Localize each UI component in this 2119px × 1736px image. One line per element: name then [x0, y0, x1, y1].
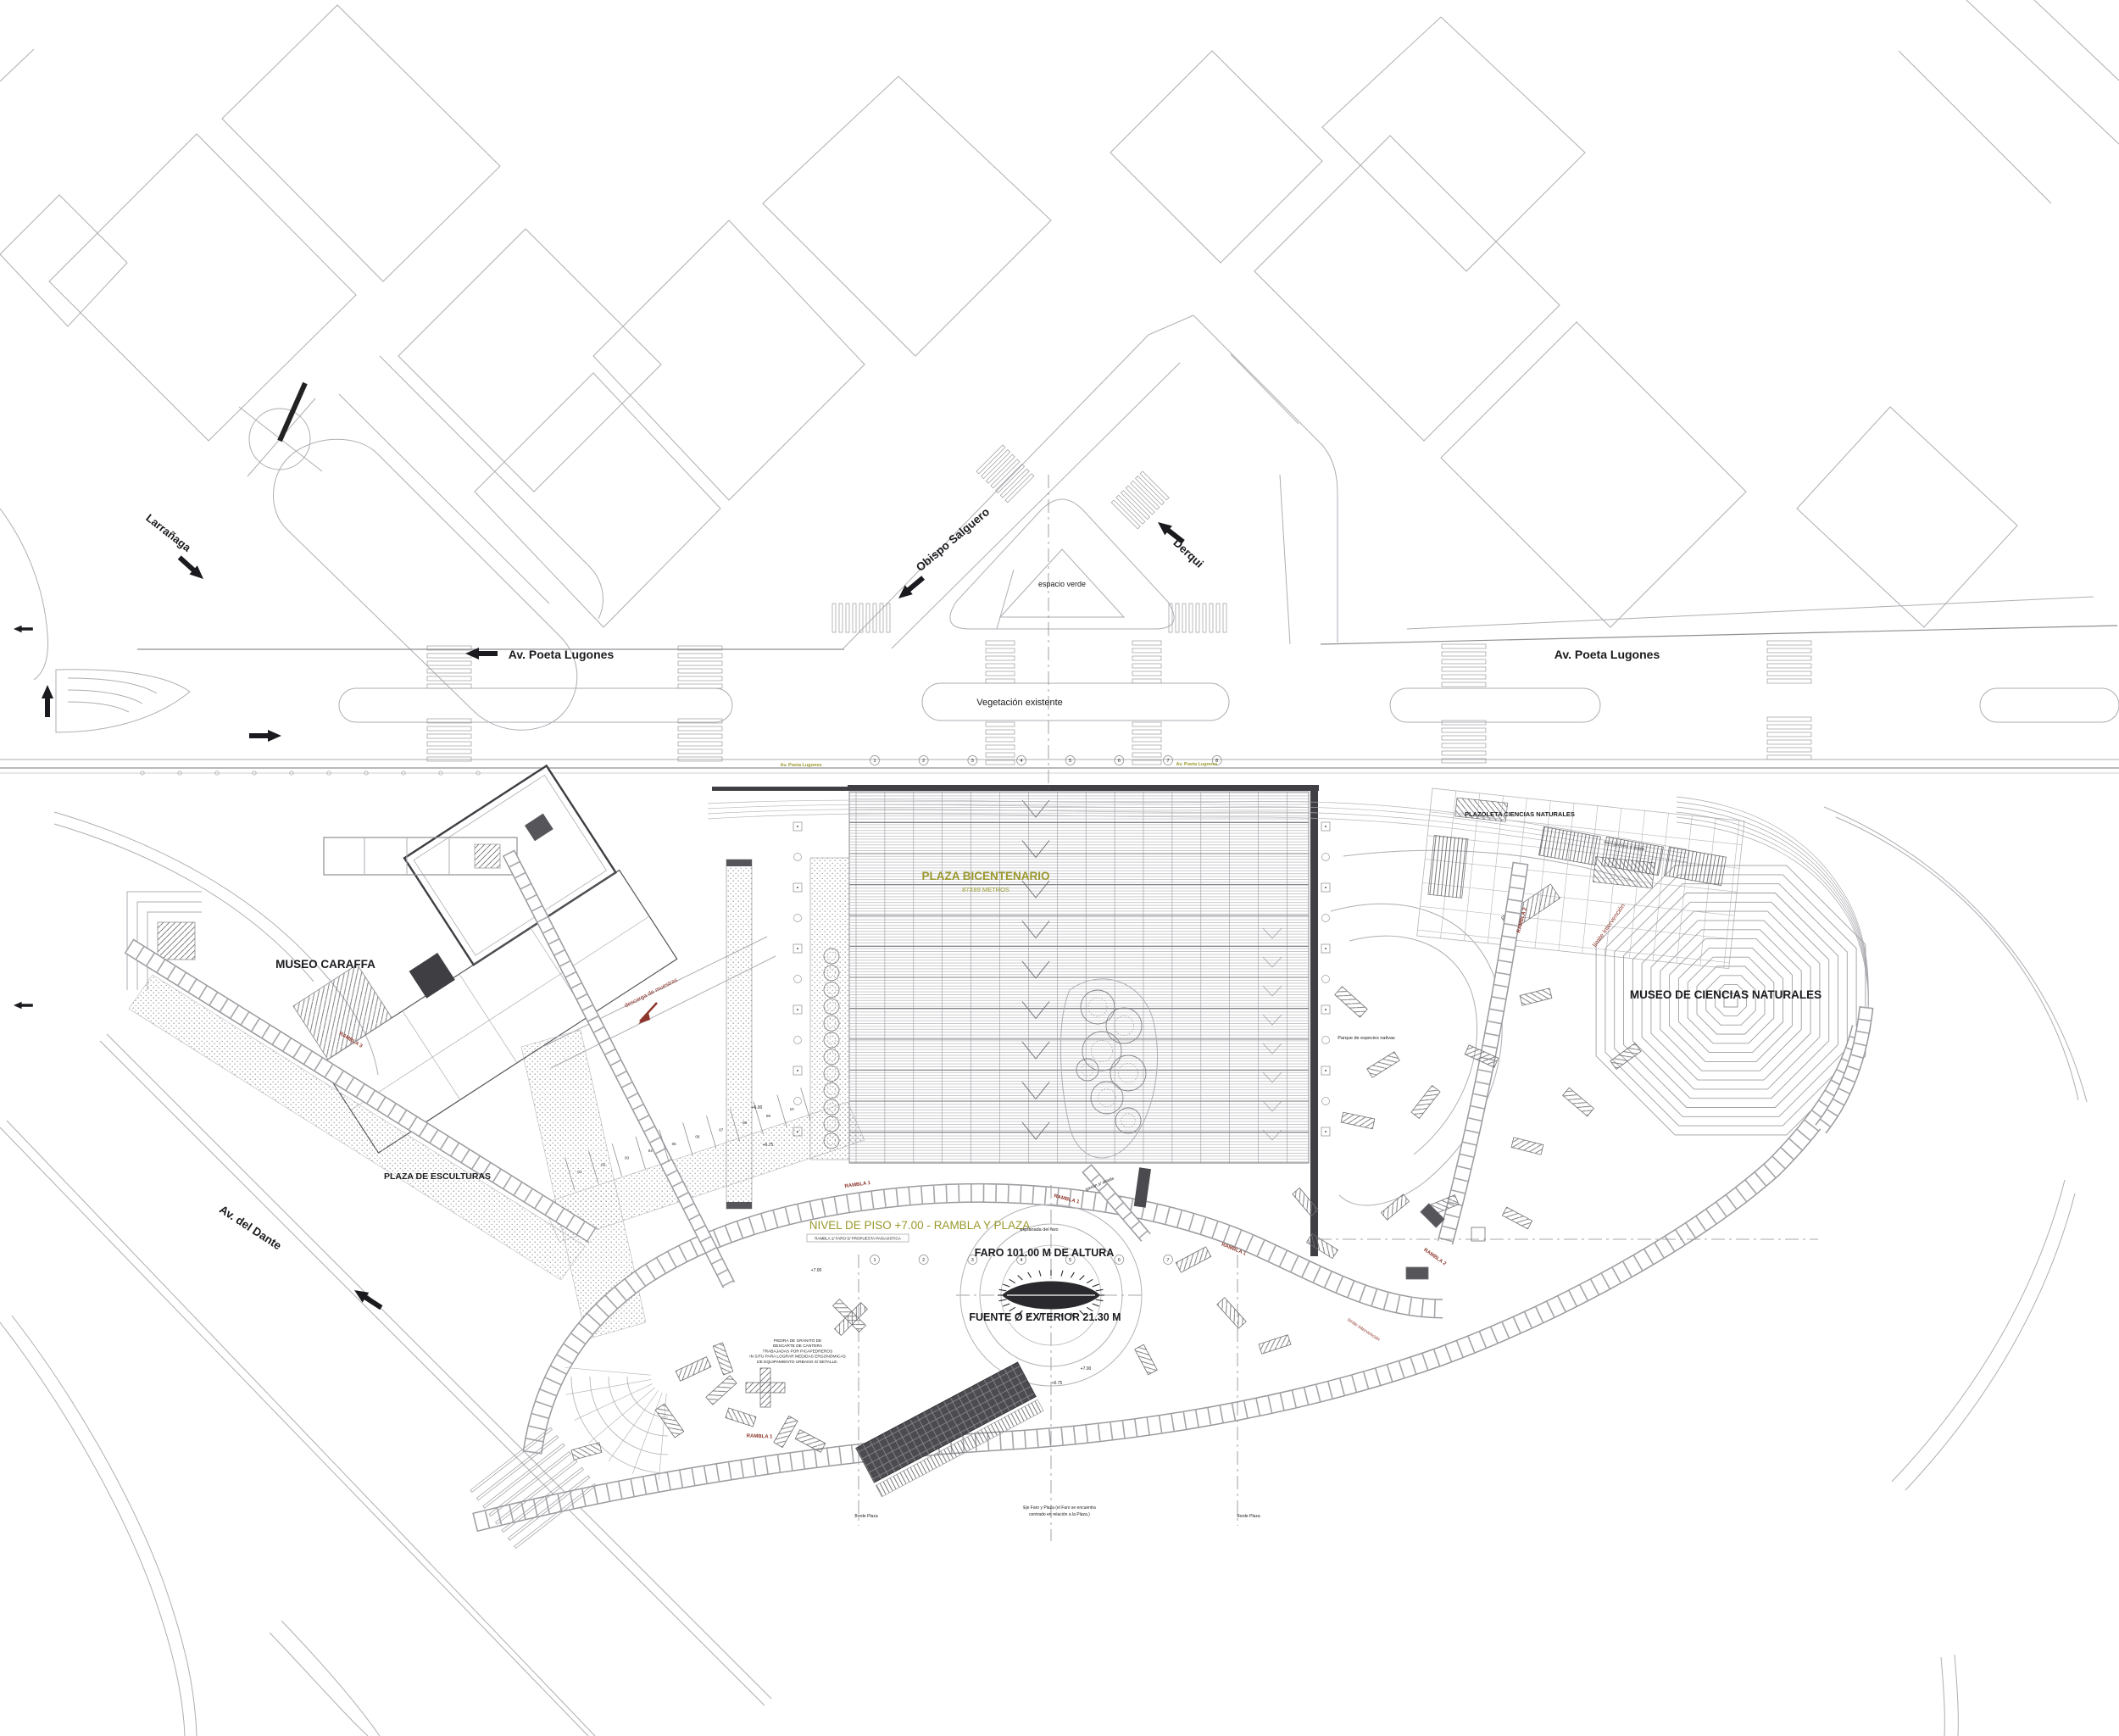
- grid-marker: 6: [1118, 759, 1121, 764]
- bench-hatch: [1411, 1086, 1440, 1119]
- median-island-vegetacion: [922, 683, 1229, 721]
- label-plaza-bicentenario: PLAZA BICENTENARIO: [922, 870, 1050, 882]
- label-nivel-de-piso: NIVEL DE PISO +7.00 - RAMBLA Y PLAZA: [809, 1219, 1031, 1232]
- crosswalk: [986, 722, 1015, 765]
- street-label-av-poeta-lugones-left: Av. Poeta Lugones: [509, 648, 615, 661]
- note-piedra-granito: PIEDRA DE GRANITO DE: [774, 1338, 822, 1344]
- parking-stall-number: 05: [672, 1142, 677, 1146]
- plaza-east-wall: [1310, 788, 1318, 1256]
- bench-hatch: [1511, 1138, 1543, 1155]
- crosswalk: [678, 719, 722, 761]
- label-explanada: explanada del faro: [1020, 1227, 1058, 1232]
- parking-stall-number: 06: [695, 1135, 700, 1139]
- pergola-building: [856, 1362, 1043, 1497]
- label-eje-faro-1: Eje Faro y Plaza (el Faro se encuentra: [1023, 1505, 1096, 1511]
- bench-hatch: [1135, 1344, 1158, 1375]
- crosswalk: [1767, 641, 1811, 683]
- label-descarga: descarga de muestras: [624, 977, 679, 1010]
- label-borde-plaza-right: Borde Plaza: [1237, 1514, 1260, 1519]
- city-blocks-layer: [0, 0, 2119, 730]
- crosswalk: [427, 646, 471, 688]
- bench-hatch: [655, 1404, 684, 1438]
- parking-stall-number: 08: [742, 1121, 748, 1125]
- crosswalk: [976, 445, 1034, 503]
- grid-marker: 4: [1020, 759, 1022, 764]
- direction-arrow: [175, 553, 208, 583]
- label-faro: FARO 101.00 M DE ALTURA: [975, 1247, 1115, 1259]
- direction-arrow: [14, 1002, 33, 1009]
- direction-arrow: [42, 685, 53, 717]
- street-label-av-poeta-lugones-right: Av. Poeta Lugones: [1554, 648, 1660, 661]
- parking-stall-number: 10: [790, 1107, 795, 1111]
- site-plan: 12345678123456701020304050607080910+7.00…: [0, 0, 2119, 1736]
- crosswalk: [1132, 641, 1161, 683]
- direction-arrow: [895, 573, 927, 603]
- label-plazoleta: PLAZOLETA CIENCIAS NATURALES: [1465, 810, 1575, 818]
- bench-hatch: [1217, 1298, 1246, 1328]
- parking-stall-number: 02: [601, 1163, 606, 1167]
- bench-hatch: [713, 1343, 733, 1375]
- label-parque-nativas: Parque de especies nativas: [1338, 1036, 1395, 1041]
- level-label: +6.75: [1052, 1381, 1063, 1386]
- crosswalk: [678, 646, 722, 688]
- bench-hatch: [676, 1357, 711, 1382]
- label-museo-caraffa: MUSEO CARAFFA: [275, 958, 375, 971]
- street-label-obispo-salguero: Obispo Salguero: [914, 505, 992, 574]
- bench-hatch: [1341, 1112, 1375, 1129]
- bench-hatch: [774, 1416, 798, 1447]
- label-nivel-box: RAMBLA 1/ FARO S/ PROPUESTA PAISAJISTICA: [815, 1237, 901, 1241]
- bench-hatch: [1520, 988, 1552, 1005]
- parking-stall-number: 09: [766, 1114, 771, 1118]
- note-piedra-granito: IN SITU PARA LOGRAR MEDIDAS ERGONÓMICAS: [749, 1354, 845, 1360]
- bench-hatch: [706, 1376, 737, 1405]
- level-label: +7.00: [1081, 1366, 1092, 1372]
- label-museo-ciencias-naturales: MUSEO DE CIENCIAS NATURALES: [1630, 988, 1821, 1001]
- label-plaza-dim: 87X89 METROS: [962, 886, 1009, 893]
- parking-stall-number: 04: [648, 1149, 653, 1153]
- bench-hatch: [571, 1443, 602, 1460]
- label-rambla1-a: RAMBLA 1: [844, 1181, 871, 1189]
- label-plaza-de-esculturas: PLAZA DE ESCULTURAS: [384, 1171, 491, 1182]
- crosswalk: [1111, 471, 1169, 529]
- median-island: [339, 688, 732, 722]
- level-label: +6.75: [763, 1143, 774, 1148]
- bench-hatch: [1502, 1207, 1532, 1229]
- crosswalk: [832, 604, 890, 632]
- grid-marker: 7: [1166, 1258, 1169, 1263]
- grid-marker: 2: [922, 1258, 925, 1263]
- bench-hatch: [795, 1430, 826, 1453]
- bench-hatch: [1563, 1088, 1594, 1116]
- level-label: +6.00: [752, 1105, 763, 1110]
- note-piedra-granito: TRABAJADAS POR PICAPEDREROS: [763, 1349, 833, 1354]
- median-island: [1980, 688, 2119, 722]
- bench-hatch: [1406, 1267, 1428, 1279]
- street-label-derqui: Derqui: [1171, 537, 1206, 570]
- label-borde-plaza-left: Borde Plaza: [854, 1514, 877, 1519]
- grid-marker: 5: [1069, 759, 1071, 764]
- street-label-small-a: Av. Poeta Lugones: [781, 763, 822, 768]
- crosswalk: [1169, 604, 1226, 632]
- direction-arrow: [14, 626, 33, 632]
- museo-caraffa-layer: [127, 764, 865, 1339]
- parking-stall-number: 03: [625, 1155, 630, 1160]
- bench-hatch: [726, 1408, 756, 1427]
- grid-marker: 1: [873, 759, 876, 764]
- crosswalk: [1442, 644, 1486, 687]
- parking-stall-number: 07: [719, 1127, 724, 1132]
- label-limite-b: límite intervención: [1346, 1318, 1380, 1343]
- grid-marker: 2: [922, 759, 925, 764]
- label-rambla2-b: RAMBLA 2: [1422, 1248, 1447, 1267]
- bench-hatch: [760, 1368, 770, 1407]
- bench-hatch: [1176, 1247, 1210, 1272]
- street-label-av-del-dante: Av. del Dante: [217, 1203, 284, 1253]
- street-label-small-b: Av. Poeta Lugones: [1176, 762, 1218, 767]
- street-label-larranaga: Larrañaga: [143, 511, 193, 554]
- direction-arrow: [249, 730, 281, 742]
- level-label: +7.00: [811, 1268, 822, 1273]
- label-fuente: FUENTE Ø EXTERIOR 21.30 M: [969, 1311, 1121, 1323]
- bench-hatch: [1381, 1194, 1409, 1220]
- bench-hatch: [1539, 826, 1601, 865]
- label-espacio-verde: espacio verde: [1038, 580, 1086, 588]
- median-island: [1390, 688, 1600, 722]
- label-rambla1-c: RAMBLA 1: [747, 1433, 774, 1439]
- grid-marker: 3: [971, 1258, 974, 1263]
- crosswalk: [1767, 717, 1811, 759]
- label-limite-a: límite intervención: [1591, 902, 1627, 949]
- label-vegetacion-existente: Vegetación existente: [976, 698, 1063, 708]
- bench-hatch: [1335, 987, 1367, 1017]
- grid-marker: 3: [971, 759, 974, 764]
- crosswalk: [427, 719, 471, 761]
- bench-hatch: [1259, 1335, 1291, 1355]
- grid-marker: 1: [873, 1258, 876, 1263]
- crosswalk: [1132, 722, 1161, 765]
- parking-stall-number: 01: [577, 1170, 582, 1174]
- note-piedra-granito: DE EQUIPAMIENTO URBANO S/ DETALLE.: [757, 1360, 838, 1365]
- grid-marker: 7: [1166, 759, 1169, 764]
- label-eje-faro-2: centrado en relación a la Plaza.): [1029, 1512, 1090, 1517]
- crosswalk: [1442, 721, 1486, 763]
- crosswalk: [986, 641, 1015, 683]
- grid-marker: 6: [1118, 1258, 1121, 1263]
- plaza-north-wall: [848, 785, 1319, 791]
- bench-hatch: [1367, 1052, 1400, 1077]
- note-piedra-granito: DESCARTE DE CANTERA: [773, 1344, 823, 1349]
